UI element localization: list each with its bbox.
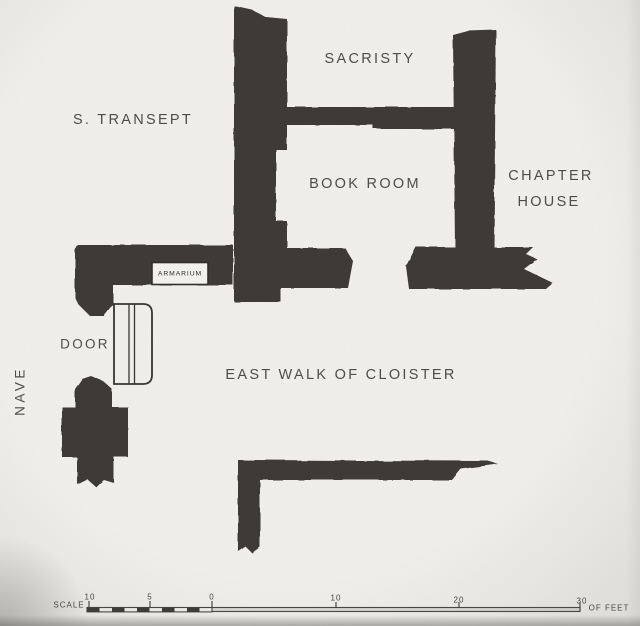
- floor-plan: SACRISTY S. TRANSEPT BOOK ROOM CHAPTER H…: [0, 0, 640, 626]
- scale-tick-left-5: 5: [147, 593, 152, 602]
- label-house: HOUSE: [517, 194, 580, 210]
- label-armarium: ARMARIUM: [158, 271, 202, 278]
- label-s-transept: S. TRANSEPT: [73, 112, 193, 128]
- label-door: DOOR: [60, 337, 110, 352]
- label-east-walk: EAST WALK OF CLOISTER: [225, 367, 456, 383]
- paper-grain: [0, 0, 640, 626]
- label-book-room: BOOK ROOM: [309, 176, 421, 192]
- plan-drawing: [0, 0, 640, 626]
- label-chapter: CHAPTER: [508, 168, 593, 184]
- scale-tick-left-10: 10: [85, 593, 96, 602]
- scale-tick-10: 10: [331, 594, 342, 603]
- label-sacristy: SACRISTY: [325, 51, 416, 67]
- scale-tick-30: 30: [577, 597, 588, 606]
- scale-label: SCALE: [53, 601, 84, 610]
- scale-tick-20: 20: [454, 596, 465, 605]
- label-nave: NAVE: [13, 366, 28, 416]
- scale-tick-0: 0: [209, 593, 214, 602]
- scale-unit-label: OF FEET: [589, 604, 630, 613]
